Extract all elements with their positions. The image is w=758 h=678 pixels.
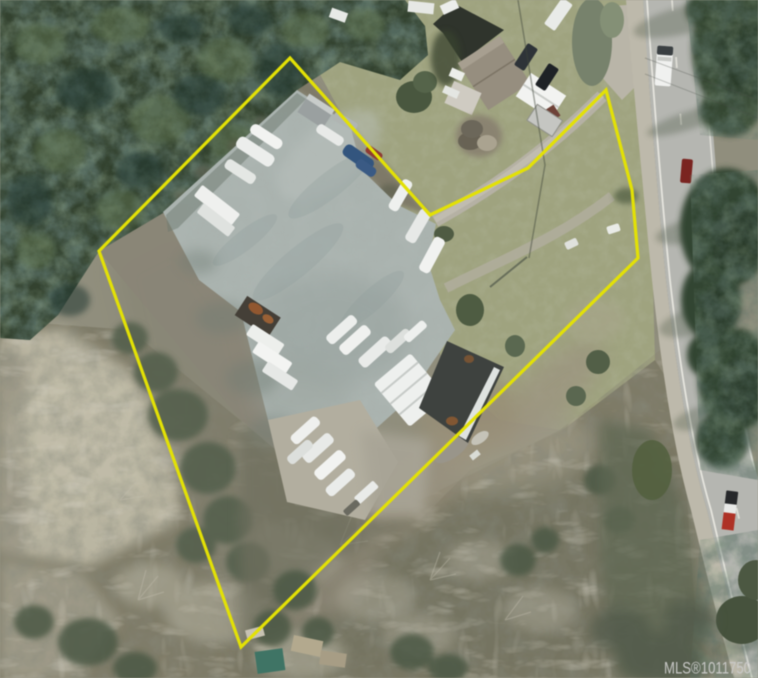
svg-text:MLS®1011750: MLS®1011750 — [664, 660, 751, 678]
